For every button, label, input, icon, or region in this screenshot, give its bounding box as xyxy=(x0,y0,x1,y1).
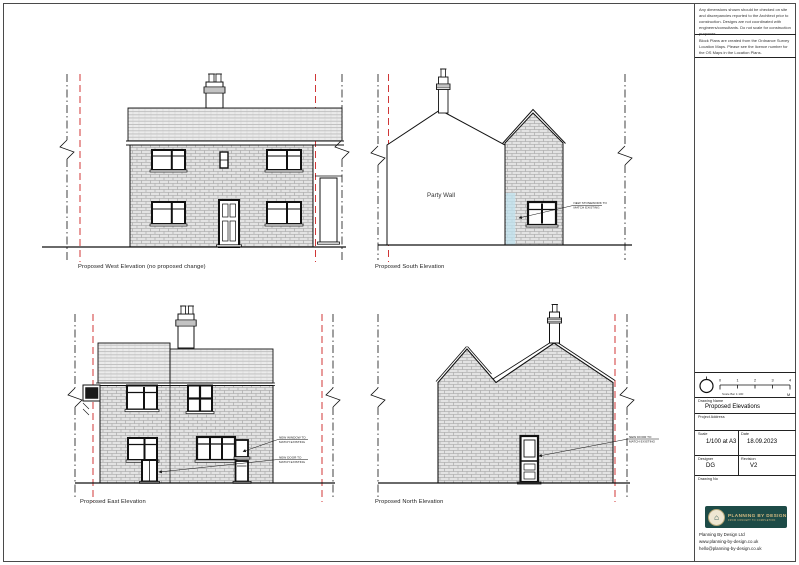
scale-bar-line xyxy=(720,385,790,390)
revision-label: Revision xyxy=(741,457,756,461)
roof-right xyxy=(170,349,273,383)
os-note: Block Plans are created from the Ordnanc… xyxy=(699,38,792,56)
notes-divider-2 xyxy=(695,57,796,58)
scale-label: Scale xyxy=(698,432,708,436)
lower-window-left xyxy=(150,202,187,226)
lower-window-left xyxy=(126,438,159,462)
right-door xyxy=(233,461,251,483)
designer-label: Designer xyxy=(698,457,713,461)
south-elevation-label: Proposed South Elevation xyxy=(375,264,444,270)
front-door xyxy=(217,200,242,247)
disclaimer-note: Any dimensions shown should be checked o… xyxy=(699,7,792,37)
north-elevation-label: Proposed North Elevation xyxy=(375,499,443,505)
svg-text:MATCH EXISTING: MATCH EXISTING xyxy=(279,440,306,444)
drawing-sheet-page: { "notes": { "disclaimer": "Any dimensio… xyxy=(0,0,799,565)
west-elevation-label: Proposed West Elevation (no proposed cha… xyxy=(78,264,206,270)
south-elevation-drawing: Party Wall NEW STONEWORK TO MATCH EXISTI… xyxy=(370,60,660,275)
party-wall-gable xyxy=(387,110,505,245)
left-door xyxy=(140,460,160,483)
drawing-no-label: Drawing No xyxy=(698,477,718,481)
logo-text: PLANNING BY DESIGN xyxy=(728,513,787,518)
chimney xyxy=(204,74,225,108)
svg-text:2: 2 xyxy=(754,379,756,383)
rear-door xyxy=(518,436,542,484)
svg-text:3: 3 xyxy=(771,379,773,383)
svg-text:NEW STONEWORK TO: NEW STONEWORK TO xyxy=(574,201,608,205)
svg-text:MATCH EXISTING: MATCH EXISTING xyxy=(629,440,656,444)
designer-value: DG xyxy=(706,463,715,469)
chimney xyxy=(437,69,451,113)
company-name: Planning By Design Ltd xyxy=(699,532,795,539)
logo-house-icon: ⌂ xyxy=(708,509,725,526)
company-website: www.planning-by-design.co.uk xyxy=(699,539,795,546)
company-email: hello@planning-by-design.co.uk xyxy=(699,546,795,553)
project-address-label: Project Address xyxy=(698,415,725,419)
east-elevation-drawing: NEW WINDOW TO MATCH EXISTING NEW DOOR TO… xyxy=(60,300,350,515)
upper-window-right-4pane xyxy=(186,386,214,414)
title-block-divider xyxy=(694,3,695,562)
tb-column-divider xyxy=(738,430,739,476)
revision-value: V2 xyxy=(750,463,757,469)
north-symbol-icon xyxy=(700,380,713,393)
lower-window-right xyxy=(265,202,303,226)
scale-bar-caption: Scale Bar 1:100 xyxy=(722,392,744,396)
company-info: Planning By Design Ltd www.planning-by-d… xyxy=(699,532,795,552)
chimney xyxy=(176,306,196,348)
lower-wide-window xyxy=(195,437,237,462)
svg-text:MATCH EXISTING: MATCH EXISTING xyxy=(574,205,601,209)
gable-window xyxy=(526,202,558,227)
svg-text:0: 0 xyxy=(719,379,721,383)
svg-text:NEW WINDOW TO: NEW WINDOW TO xyxy=(279,436,306,440)
north-elevation-drawing: NEW DOOR TO MATCH EXISTING xyxy=(370,300,665,515)
upper-window-left xyxy=(125,386,159,412)
small-landing-window xyxy=(220,152,228,168)
date-value: 18.09.2023 xyxy=(747,439,777,445)
eaves-fascia xyxy=(126,141,344,145)
svg-text:NEW DOOR TO: NEW DOOR TO xyxy=(279,456,302,460)
drawing-name-value: Proposed Elevations xyxy=(705,404,760,410)
roof xyxy=(128,108,342,141)
svg-text:4: 4 xyxy=(789,379,791,383)
party-wall-label: Party Wall xyxy=(427,192,455,199)
svg-text:NEW DOOR TO: NEW DOOR TO xyxy=(629,435,652,439)
upper-window-left xyxy=(150,150,187,172)
tb-rule-0 xyxy=(695,372,796,373)
os-notes-block: Block Plans are created from the Ordnanc… xyxy=(699,38,792,56)
west-elevation-drawing xyxy=(40,60,350,275)
roof-left xyxy=(98,343,170,383)
upper-window-right xyxy=(265,150,303,172)
notes-divider-1 xyxy=(695,34,796,35)
scale-value: 1/100 at A3 xyxy=(706,439,736,445)
neighbour-structure xyxy=(83,385,100,415)
svg-text:1: 1 xyxy=(736,379,738,383)
logo-tagline: FROM CONCEPT TO COMPLETION xyxy=(728,519,787,522)
drawing-name-label: Drawing Name xyxy=(698,399,723,403)
chimney xyxy=(548,305,562,344)
narrow-window xyxy=(234,440,250,459)
company-logo: ⌂ PLANNING BY DESIGN FROM CONCEPT TO COM… xyxy=(705,506,787,528)
svg-text:MATCH EXISTING: MATCH EXISTING xyxy=(279,460,306,464)
east-elevation-label: Proposed East Elevation xyxy=(80,499,146,505)
notes-block: Any dimensions shown should be checked o… xyxy=(699,7,792,37)
date-label: Date xyxy=(741,432,749,436)
new-stonework-highlight xyxy=(506,193,516,245)
neighbour-porch xyxy=(315,176,342,244)
